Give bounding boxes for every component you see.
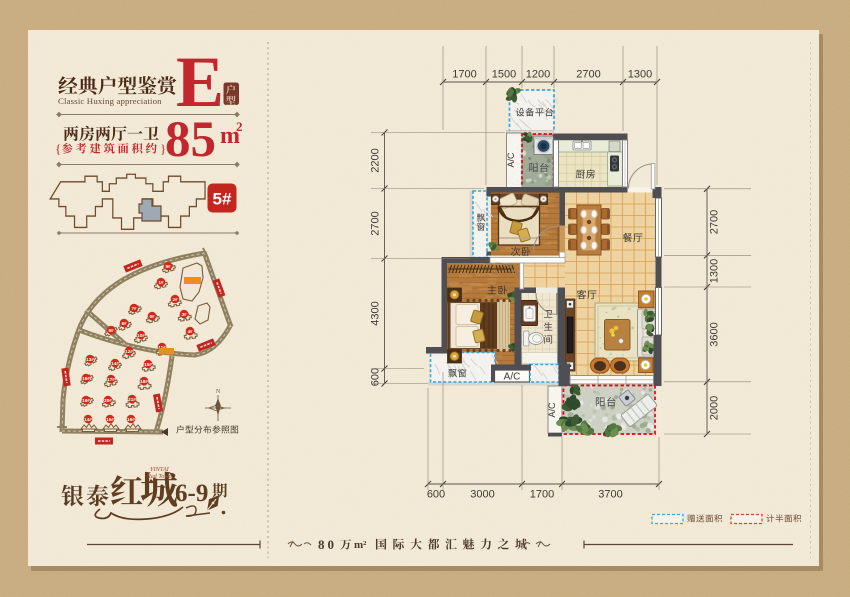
svg-text:3600: 3600 xyxy=(709,322,721,346)
svg-text:5#: 5# xyxy=(213,190,232,209)
svg-text:4#: 4# xyxy=(187,329,193,334)
svg-text:1300: 1300 xyxy=(709,259,721,283)
svg-text:4300: 4300 xyxy=(370,301,382,325)
svg-text:21#: 21# xyxy=(128,397,136,402)
svg-text:1300: 1300 xyxy=(628,69,652,81)
svg-text:3700: 3700 xyxy=(598,489,622,501)
svg-text:19#: 19# xyxy=(82,398,90,403)
svg-text:Red Town: Red Town xyxy=(146,473,172,480)
svg-text:6#: 6# xyxy=(149,314,155,319)
svg-text:20#: 20# xyxy=(104,398,112,403)
svg-text:A/C: A/C xyxy=(504,372,521,383)
svg-text:2700: 2700 xyxy=(709,210,721,234)
svg-text:9#: 9# xyxy=(108,328,114,333)
svg-text:1700: 1700 xyxy=(452,69,476,81)
svg-text:1200: 1200 xyxy=(526,69,550,81)
svg-text:2700: 2700 xyxy=(576,69,600,81)
svg-text:A/C: A/C xyxy=(547,402,557,418)
svg-text:N: N xyxy=(216,389,221,395)
svg-text:6-9: 6-9 xyxy=(175,480,208,507)
svg-text:3#: 3# xyxy=(181,312,187,317)
svg-text:E: E xyxy=(176,42,224,122)
svg-text:Classic Huxing appreciation: Classic Huxing appreciation xyxy=(58,96,162,106)
svg-text:5#: 5# xyxy=(165,264,171,269)
svg-text:m²: m² xyxy=(354,539,367,551)
svg-text:YINTAI: YINTAI xyxy=(150,466,170,473)
svg-text:85: 85 xyxy=(165,112,216,168)
svg-text:1700: 1700 xyxy=(530,489,554,501)
svg-text:A/C: A/C xyxy=(506,152,516,168)
svg-text:10#: 10# xyxy=(137,333,145,338)
svg-text:15#: 15# xyxy=(144,362,152,367)
svg-text:600: 600 xyxy=(427,489,445,501)
svg-text:3000: 3000 xyxy=(470,489,494,501)
svg-text:2200: 2200 xyxy=(370,148,382,172)
svg-text:14#: 14# xyxy=(111,361,119,366)
svg-text:7#: 7# xyxy=(131,306,137,311)
svg-text:17#: 17# xyxy=(107,377,115,382)
svg-text:15#: 15# xyxy=(106,417,114,422)
svg-text:2#: 2# xyxy=(172,297,178,302)
svg-text:18#: 18# xyxy=(140,379,148,384)
svg-text:16#: 16# xyxy=(127,417,135,422)
svg-text:2: 2 xyxy=(236,119,243,134)
svg-text:13#: 13# xyxy=(86,357,94,362)
svg-text:80: 80 xyxy=(318,537,337,552)
svg-text:2700: 2700 xyxy=(370,211,382,235)
svg-text:16#: 16# xyxy=(82,376,90,381)
svg-text:2000: 2000 xyxy=(709,396,721,420)
svg-text:{: { xyxy=(55,141,61,156)
svg-text:1#: 1# xyxy=(158,280,164,285)
svg-text:14#: 14# xyxy=(84,417,92,422)
svg-text:12#: 12# xyxy=(125,349,133,354)
svg-text:1500: 1500 xyxy=(492,69,516,81)
svg-text:8#: 8# xyxy=(121,321,127,326)
